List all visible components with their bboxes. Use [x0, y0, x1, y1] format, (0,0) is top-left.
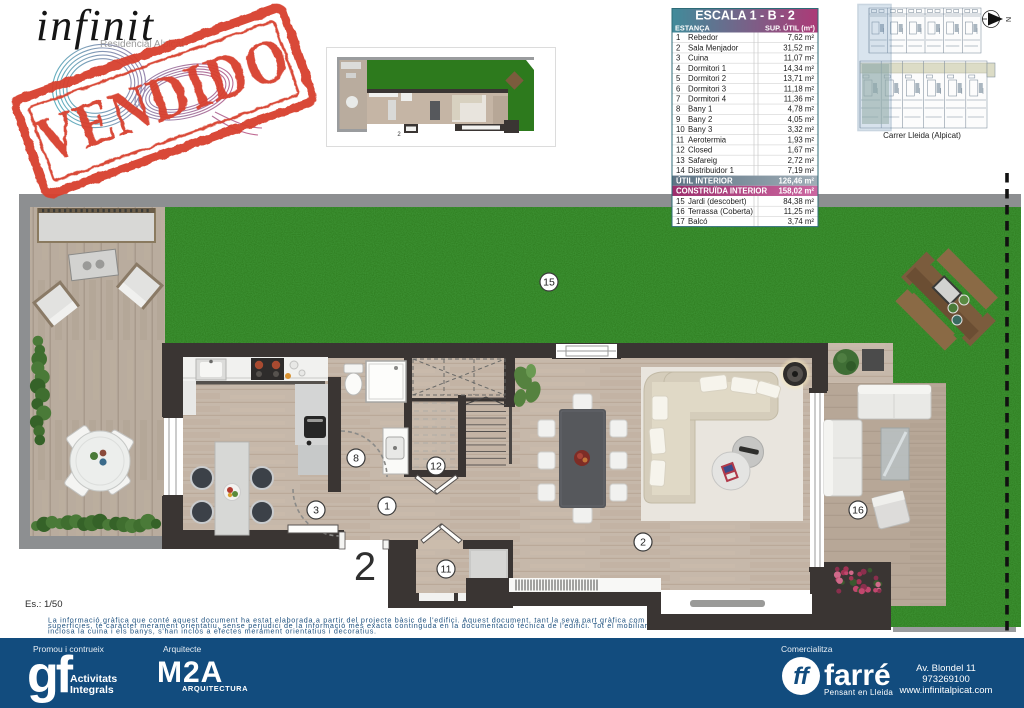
svg-text:5: 5 [676, 74, 681, 83]
svg-text:Bany 3: Bany 3 [688, 125, 712, 134]
svg-text:www.infinitalpicat.com: www.infinitalpicat.com [899, 685, 993, 696]
svg-text:7: 7 [676, 95, 680, 104]
svg-text:31,52 m²: 31,52 m² [783, 43, 814, 52]
svg-text:N: N [1006, 17, 1013, 22]
svg-text:Balcó: Balcó [688, 217, 708, 226]
svg-text:3: 3 [313, 505, 319, 517]
svg-text:126,46 m²: 126,46 m² [778, 176, 814, 185]
svg-text:1,67 m²: 1,67 m² [788, 146, 815, 155]
svg-text:Comercialitza: Comercialitza [781, 644, 833, 654]
svg-text:inclosa la cuina i els banys,: inclosa la cuina i els banys, s'han incl… [48, 627, 377, 636]
svg-text:3,32 m²: 3,32 m² [788, 125, 815, 134]
svg-text:Terrassa (Coberta): Terrassa (Coberta) [688, 207, 753, 216]
svg-text:2: 2 [676, 43, 680, 52]
svg-text:11: 11 [676, 135, 684, 144]
svg-text:4: 4 [676, 64, 681, 73]
svg-text:11,07 m²: 11,07 m² [784, 54, 815, 63]
svg-text:Jardi (descobert): Jardi (descobert) [688, 197, 747, 206]
svg-text:158,02 m²: 158,02 m² [778, 187, 814, 196]
svg-text:8: 8 [353, 453, 359, 465]
svg-text:11,25 m²: 11,25 m² [784, 207, 815, 216]
svg-text:10: 10 [676, 125, 685, 134]
svg-text:Dormitori 4: Dormitori 4 [688, 95, 727, 104]
svg-text:2: 2 [354, 545, 376, 589]
svg-text:4,78 m²: 4,78 m² [788, 105, 815, 114]
svg-text:8: 8 [676, 105, 680, 114]
svg-text:3: 3 [676, 54, 680, 63]
svg-text:gf: gf [27, 646, 74, 704]
svg-text:SUP. ÚTIL (m²): SUP. ÚTIL (m²) [765, 24, 816, 33]
svg-text:ESTANÇA: ESTANÇA [675, 24, 710, 33]
svg-text:14: 14 [676, 166, 685, 175]
svg-text:Pensant en Lleida: Pensant en Lleida [824, 688, 893, 697]
svg-text:Av. Blondel 11: Av. Blondel 11 [916, 663, 976, 674]
svg-text:Es.: 1/50: Es.: 1/50 [25, 599, 63, 610]
svg-text:Rebedor: Rebedor [688, 33, 718, 42]
svg-text:1: 1 [676, 33, 680, 42]
svg-text:Dormitori 3: Dormitori 3 [688, 84, 726, 93]
svg-text:Cuina: Cuina [688, 54, 709, 63]
svg-text:ESCALA 1 - B - 2: ESCALA 1 - B - 2 [695, 9, 795, 23]
svg-text:7,62 m²: 7,62 m² [788, 33, 815, 42]
svg-text:9: 9 [676, 115, 680, 124]
svg-text:3,74 m²: 3,74 m² [788, 217, 815, 226]
svg-text:Bany 2: Bany 2 [688, 115, 712, 124]
svg-text:Distribuidor 1: Distribuidor 1 [688, 166, 734, 175]
svg-text:Dormitori 1: Dormitori 1 [688, 64, 726, 73]
svg-text:Carrer Lleida (Alpicat): Carrer Lleida (Alpicat) [883, 131, 961, 140]
svg-text:CONSTRUÏDA INTERIOR: CONSTRUÏDA INTERIOR [676, 187, 767, 196]
svg-text:84,38 m²: 84,38 m² [783, 197, 814, 206]
svg-text:2: 2 [640, 537, 646, 549]
svg-text:1: 1 [384, 501, 390, 513]
svg-text:Dormitori 2: Dormitori 2 [688, 74, 726, 83]
svg-text:ff: ff [793, 663, 811, 690]
svg-text:12: 12 [676, 146, 685, 155]
svg-text:973269100: 973269100 [922, 674, 970, 685]
svg-text:12: 12 [430, 461, 442, 473]
svg-text:Arquitecte: Arquitecte [163, 644, 202, 654]
svg-text:Safareig: Safareig [688, 156, 717, 165]
svg-text:17: 17 [676, 217, 685, 226]
svg-text:11: 11 [441, 564, 452, 576]
svg-text:4,05 m²: 4,05 m² [788, 115, 815, 124]
svg-text:ARQUITECTURA: ARQUITECTURA [182, 684, 248, 693]
svg-text:1,93 m²: 1,93 m² [788, 135, 815, 144]
svg-text:Sala Menjador: Sala Menjador [688, 43, 739, 52]
svg-text:13: 13 [676, 156, 685, 165]
svg-text:Closed: Closed [688, 146, 712, 155]
svg-text:14,34 m²: 14,34 m² [783, 64, 814, 73]
svg-text:Aerotermia: Aerotermia [688, 135, 727, 144]
svg-text:2,72 m²: 2,72 m² [788, 156, 815, 165]
svg-text:11,36 m²: 11,36 m² [784, 95, 815, 104]
svg-text:ÚTIL INTERIOR: ÚTIL INTERIOR [676, 176, 733, 185]
svg-text:16: 16 [852, 505, 864, 517]
svg-text:15: 15 [543, 277, 555, 289]
svg-text:6: 6 [676, 84, 680, 93]
svg-text:Bany 1: Bany 1 [688, 105, 712, 114]
svg-text:15: 15 [676, 197, 685, 206]
svg-text:13,71 m²: 13,71 m² [783, 74, 814, 83]
svg-text:7,19 m²: 7,19 m² [788, 166, 815, 175]
svg-text:16: 16 [676, 207, 685, 216]
svg-text:11,18 m²: 11,18 m² [784, 84, 815, 93]
svg-text:Integrals: Integrals [70, 684, 114, 696]
